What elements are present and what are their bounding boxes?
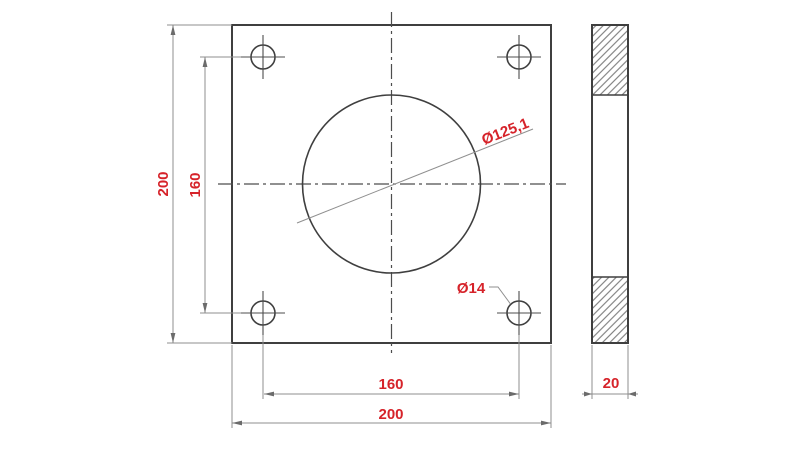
technical-drawing-canvas: 200 160 160 200 Ø125,1 Ø14: [0, 0, 800, 450]
dim-thickness-label: 20: [603, 375, 620, 392]
dim-hole-spacing-vertical-label: 160: [187, 172, 204, 197]
dim-hole-spacing-horizontal-label: 160: [378, 376, 403, 393]
section-hatch-top: [592, 25, 628, 95]
bolt-hole-dia-label: Ø14: [457, 280, 486, 297]
section-hatch-bottom: [592, 277, 628, 343]
dim-plate-width-label: 200: [378, 406, 403, 423]
dim-plate-height-label: 200: [155, 171, 172, 196]
flange-drawing-svg: 200 160 160 200 Ø125,1 Ø14: [0, 0, 800, 450]
